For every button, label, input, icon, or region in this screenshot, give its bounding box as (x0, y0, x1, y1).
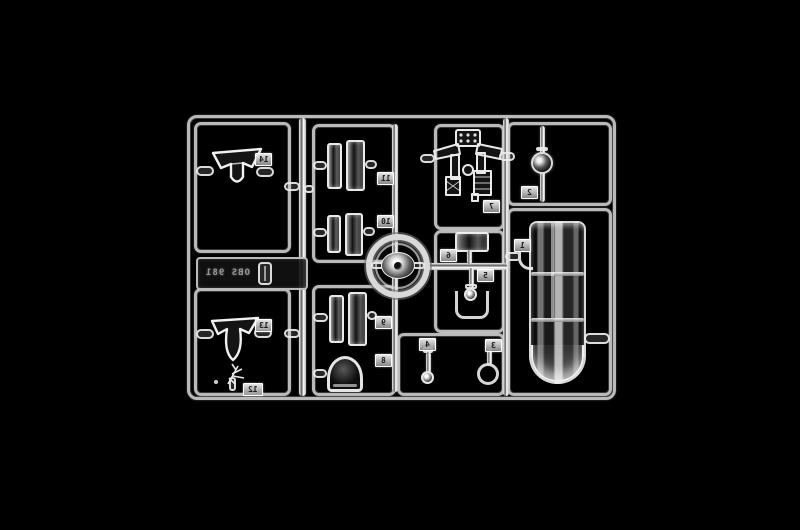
part-13-windshield-canopy (210, 316, 260, 364)
part-tab-4: 4 (419, 338, 436, 351)
part-6-gate (467, 250, 472, 264)
photo-clear-sprue: OBS 981 (0, 0, 800, 530)
connector-stub (284, 329, 300, 338)
part-9-window-pair (348, 292, 367, 346)
part-2-dome-lens (531, 152, 553, 174)
part-tab-9: 9 (375, 316, 392, 329)
part-tab-3: 3 (485, 339, 502, 352)
part-tab-13: 13 (255, 319, 272, 332)
u-channel-part (455, 291, 489, 319)
part-tab-1: 1 (514, 239, 531, 252)
part-9-lug (313, 313, 328, 322)
part-8-lug (313, 369, 327, 378)
flash-speck (214, 380, 218, 384)
part-1-band (531, 318, 584, 322)
part-11-lug (365, 160, 377, 169)
part-7-cockpit-assembly (432, 128, 504, 202)
connector-stub (304, 185, 314, 193)
part-1-seam (551, 223, 554, 318)
part-tab-12: 12 (243, 383, 263, 396)
part-1-band (531, 272, 584, 276)
part-4-ball-lens (421, 371, 434, 384)
part-11-window-pair (346, 140, 365, 191)
part-tab-10: 10 (377, 215, 394, 228)
mold-code-text: OBS 981 (205, 268, 250, 278)
part-1-lug (584, 333, 610, 344)
part-tab-5: 5 (477, 269, 494, 282)
part-2-collar (536, 147, 548, 151)
part-tab-14: 14 (255, 153, 272, 166)
runner-horizontal-middle (426, 263, 507, 270)
part-tab-7: 7 (483, 200, 500, 213)
part-10-lug (313, 228, 327, 237)
part-tab-6: 6 (440, 249, 457, 262)
part-tab-8: 8 (375, 354, 392, 367)
part-9-window-pair (329, 295, 344, 343)
part-tab-11: 11 (377, 172, 394, 185)
part-6-rect-window (455, 232, 489, 252)
part-10-window-pair (327, 215, 341, 253)
center-lens-pupil (394, 262, 402, 270)
connector-stub (284, 182, 300, 191)
part-10-window-pair (345, 213, 363, 256)
part-8-base-line (333, 384, 357, 387)
part-12-stem (229, 377, 236, 391)
part-11-lug (313, 161, 327, 170)
part-10-lug (363, 227, 375, 236)
part-tab-2: 2 (521, 186, 538, 199)
slot-part-seam (264, 266, 266, 281)
part-11-window-pair (327, 143, 342, 189)
part-3-open-ring (477, 363, 499, 385)
